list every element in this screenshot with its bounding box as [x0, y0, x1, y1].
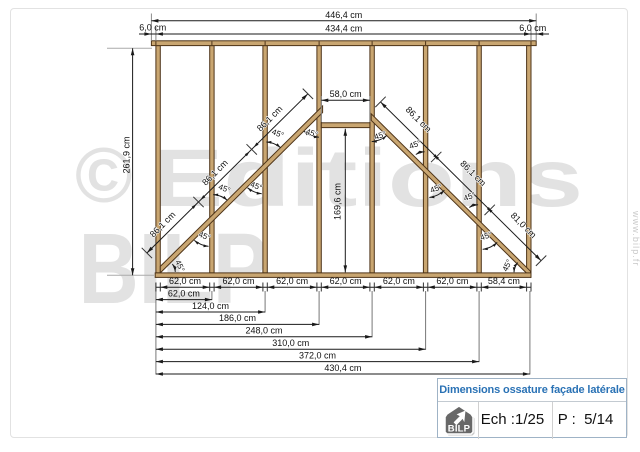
svg-text:58,0 cm: 58,0 cm	[330, 89, 362, 99]
svg-text:62,0 cm: 62,0 cm	[383, 276, 415, 286]
svg-text:62,0 cm: 62,0 cm	[330, 276, 362, 286]
svg-text:6,0 cm: 6,0 cm	[519, 23, 546, 33]
svg-text:372,0 cm: 372,0 cm	[299, 350, 336, 360]
svg-text:62,0 cm: 62,0 cm	[222, 276, 254, 286]
svg-text:62,0 cm: 62,0 cm	[276, 276, 308, 286]
svg-text:446,4 cm: 446,4 cm	[325, 10, 362, 20]
svg-text:169,6 cm: 169,6 cm	[332, 183, 342, 220]
svg-text:124,0 cm: 124,0 cm	[192, 301, 229, 311]
svg-text:248,0 cm: 248,0 cm	[245, 326, 282, 336]
svg-text:62,0 cm: 62,0 cm	[436, 276, 468, 286]
svg-text:BILP: BILP	[79, 213, 269, 325]
svg-text:261,9 cm: 261,9 cm	[122, 136, 132, 173]
svg-text:186,0 cm: 186,0 cm	[219, 313, 256, 323]
svg-text:6,0 cm: 6,0 cm	[139, 23, 166, 33]
svg-text:310,0 cm: 310,0 cm	[272, 338, 309, 348]
svg-text:BILP: BILP	[448, 424, 471, 435]
svg-text:62,0 cm: 62,0 cm	[168, 288, 200, 298]
svg-text:45°: 45°	[501, 258, 514, 273]
svg-text:430,4 cm: 430,4 cm	[324, 363, 361, 373]
svg-text:62,0 cm: 62,0 cm	[169, 276, 201, 286]
svg-text:58,4 cm: 58,4 cm	[488, 276, 520, 286]
svg-text:www.bilp.fr: www.bilp.fr	[631, 210, 640, 267]
svg-text:434,4 cm: 434,4 cm	[325, 23, 362, 33]
